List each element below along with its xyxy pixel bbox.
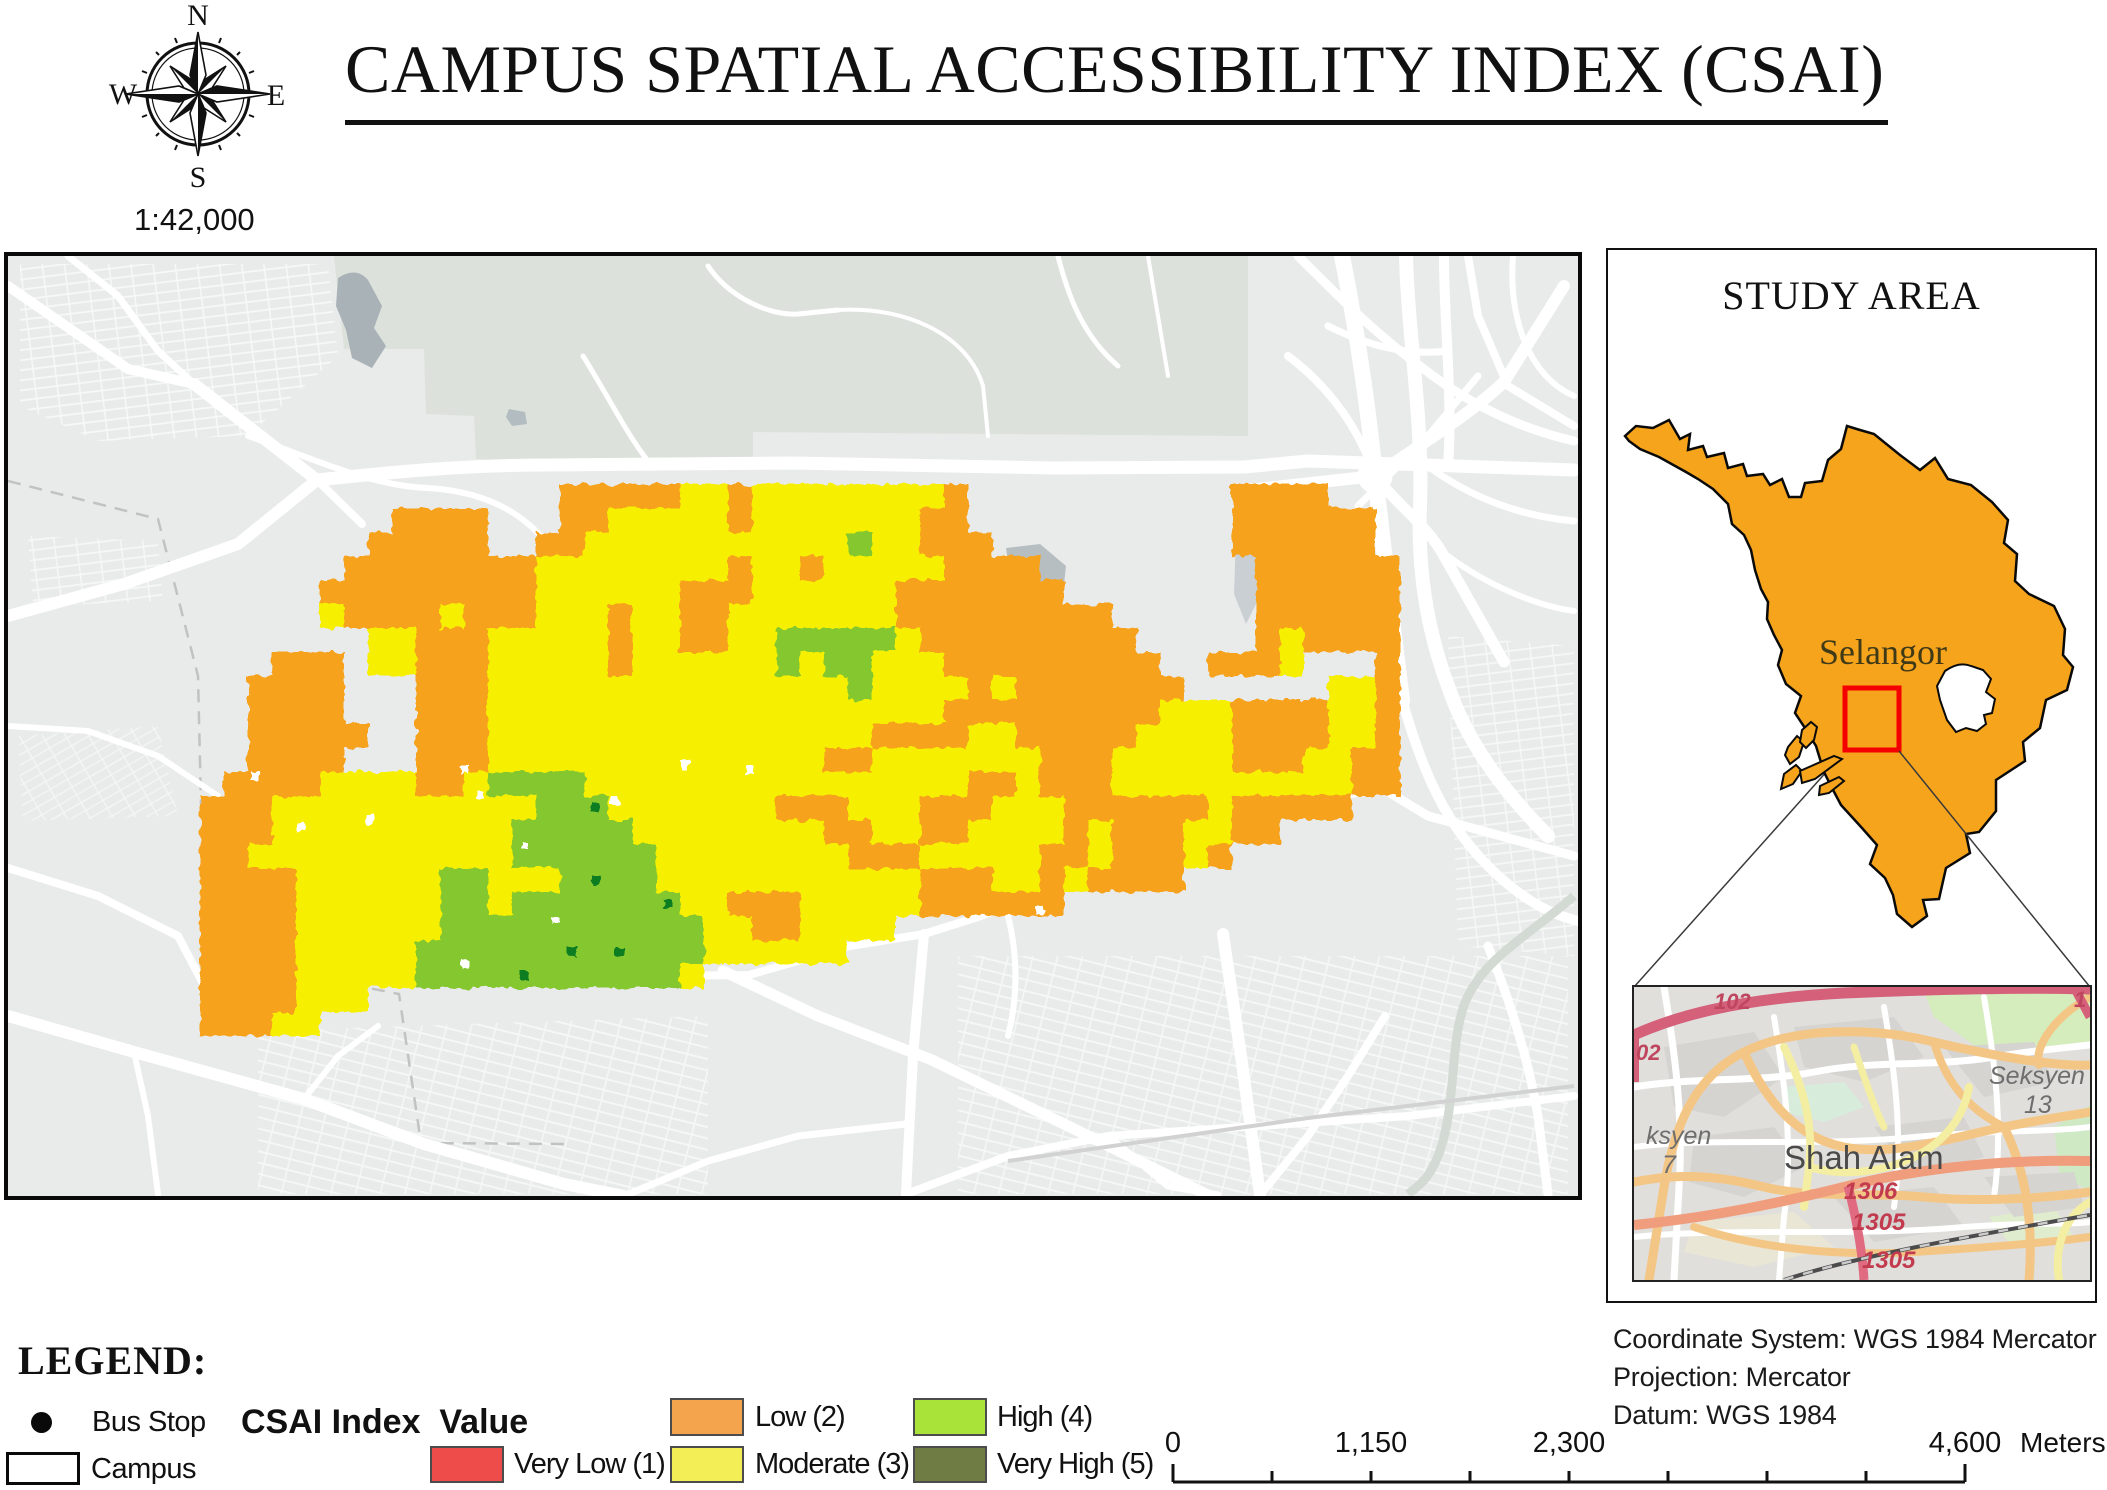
svg-text:0: 0 — [1165, 1427, 1181, 1459]
svg-text:1305: 1305 — [1862, 1247, 1916, 1274]
svg-text:1306: 1306 — [1844, 1178, 1898, 1205]
svg-text:4,600: 4,600 — [1929, 1427, 2002, 1459]
svg-text:ksyen: ksyen — [1646, 1122, 1711, 1150]
svg-text:13: 13 — [2024, 1091, 2052, 1119]
svg-text:Meters: Meters — [2020, 1427, 2106, 1458]
svg-text:2,300: 2,300 — [1533, 1427, 1606, 1459]
svg-text:1: 1 — [2074, 987, 2086, 1012]
svg-text:S: S — [190, 161, 207, 194]
svg-text:Seksyen: Seksyen — [1989, 1062, 2085, 1090]
svg-text:Shah Alam: Shah Alam — [1784, 1139, 1944, 1176]
svg-text:1305: 1305 — [1852, 1209, 1906, 1236]
svg-text:Selangor: Selangor — [1819, 632, 1947, 672]
svg-text:102: 102 — [1714, 989, 1751, 1014]
svg-text:7: 7 — [1662, 1151, 1677, 1179]
svg-text:E: E — [267, 79, 285, 112]
svg-text:02: 02 — [1636, 1040, 1661, 1065]
svg-text:W: W — [109, 78, 138, 111]
svg-text:N: N — [187, 2, 209, 32]
svg-text:1,150: 1,150 — [1335, 1427, 1408, 1459]
